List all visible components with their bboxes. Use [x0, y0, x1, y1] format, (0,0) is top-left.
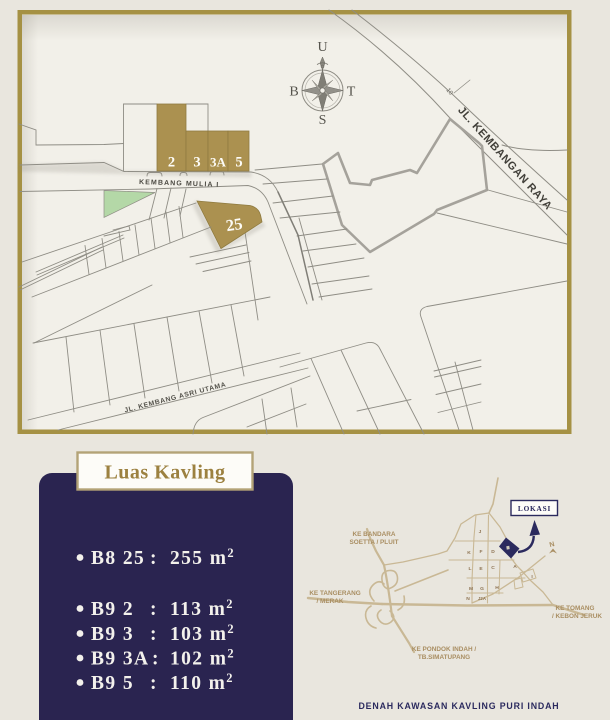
svg-text:2: 2 [168, 155, 175, 171]
svg-text::: : [150, 624, 158, 645]
svg-text:L: L [469, 566, 472, 572]
svg-text:113 m2: 113 m2 [170, 597, 234, 620]
svg-text:110 m2: 110 m2 [170, 671, 234, 694]
svg-text:TB.SIMATUPANG: TB.SIMATUPANG [418, 654, 470, 661]
svg-text:5: 5 [235, 155, 242, 171]
svg-text:B9 3: B9 3 [91, 624, 134, 645]
svg-text:3: 3 [193, 155, 200, 171]
svg-text:B9 3A: B9 3A [91, 649, 149, 670]
svg-text::: : [150, 548, 158, 569]
svg-text:Luas Kavling: Luas Kavling [104, 462, 225, 484]
svg-text:SOETTA / PLUIT: SOETTA / PLUIT [350, 539, 399, 546]
svg-text:/ MERAK: / MERAK [317, 598, 344, 605]
svg-text:S: S [319, 113, 327, 128]
svg-text:K: K [467, 550, 471, 556]
svg-text:102 m2: 102 m2 [170, 647, 235, 670]
svg-text:KE TOMANG: KE TOMANG [556, 605, 595, 612]
svg-text:A: A [513, 564, 517, 570]
svg-text:KE PONDOK INDAH /: KE PONDOK INDAH / [412, 646, 476, 653]
svg-text:KE BANDARA: KE BANDARA [353, 531, 396, 538]
svg-text:B9 2: B9 2 [91, 599, 134, 620]
svg-text:3A: 3A [210, 155, 227, 170]
svg-text:B8 25: B8 25 [91, 548, 145, 569]
svg-text:U: U [317, 40, 327, 55]
svg-text:B9 5: B9 5 [91, 673, 134, 694]
svg-text:KE TANGERANG: KE TANGERANG [309, 590, 360, 597]
svg-text:LOKASI: LOKASI [518, 504, 551, 513]
svg-text:H: H [495, 585, 499, 591]
svg-text:T: T [347, 85, 356, 100]
svg-text:D: D [491, 549, 495, 555]
svg-text:B: B [289, 85, 298, 100]
svg-text:J: J [479, 529, 482, 535]
svg-text:G: G [480, 586, 484, 592]
svg-text:J2A: J2A [478, 596, 486, 601]
svg-text:F: F [480, 549, 483, 555]
svg-text::: : [150, 599, 158, 620]
svg-text::: : [152, 649, 160, 670]
svg-text::: : [150, 673, 158, 694]
svg-text:103 m2: 103 m2 [170, 622, 235, 645]
svg-text:/ KEBON JERUK: / KEBON JERUK [552, 613, 602, 620]
svg-text:255 m2: 255 m2 [170, 546, 235, 569]
svg-text:M: M [469, 586, 473, 592]
svg-text:25: 25 [225, 214, 244, 235]
svg-text:N: N [466, 596, 470, 602]
svg-text:C: C [491, 565, 495, 571]
svg-text:DENAH KAWASAN KAVLING PURI IND: DENAH KAWASAN KAVLING PURI INDAH [358, 701, 559, 711]
